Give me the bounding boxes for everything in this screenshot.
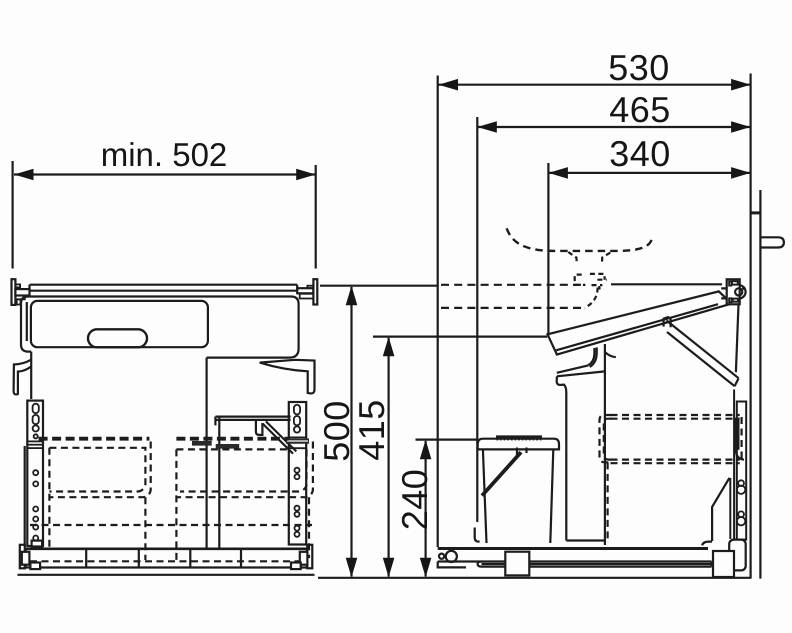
svg-text:530: 530 bbox=[608, 47, 670, 88]
svg-text:240: 240 bbox=[394, 469, 435, 531]
svg-text:465: 465 bbox=[609, 89, 671, 130]
svg-text:min. 502: min. 502 bbox=[101, 136, 228, 173]
svg-text:340: 340 bbox=[609, 133, 671, 174]
svg-text:415: 415 bbox=[351, 399, 392, 461]
